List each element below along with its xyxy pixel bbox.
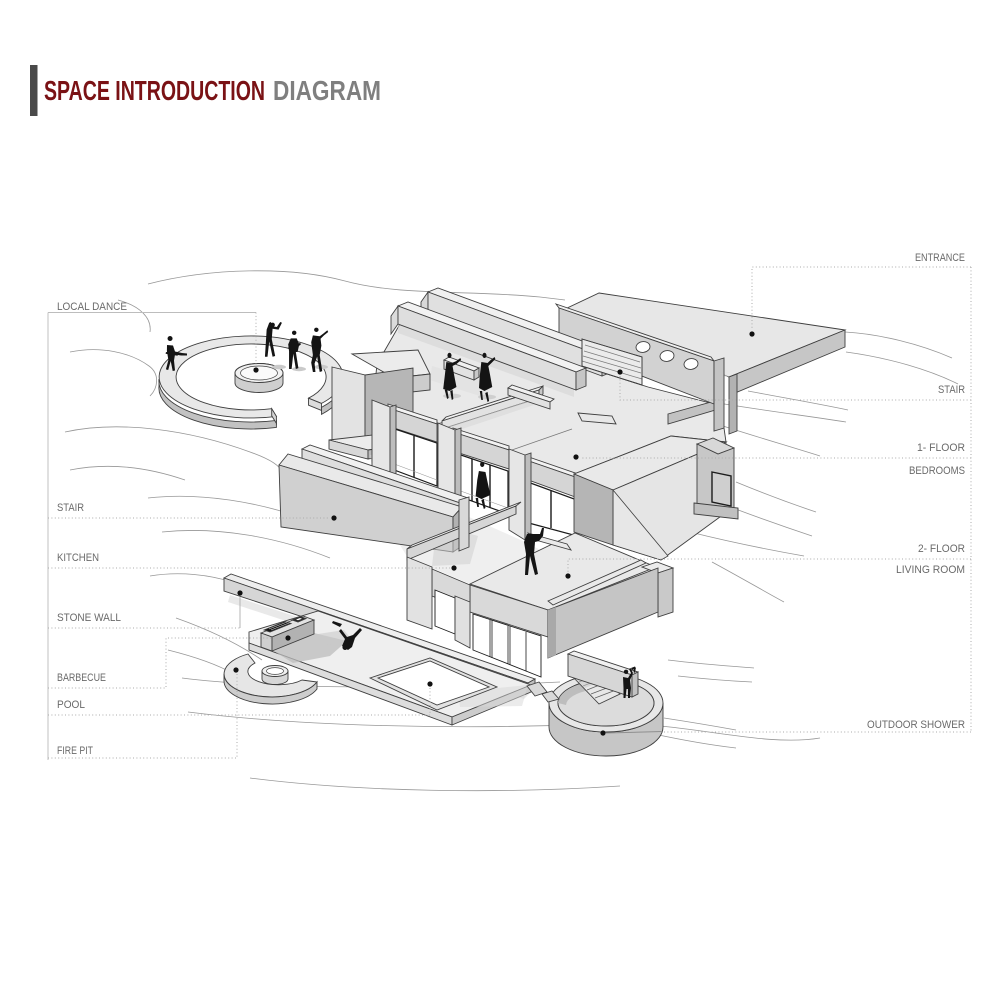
svg-text:FIRE PIT: FIRE PIT <box>57 745 93 757</box>
svg-text:KITCHEN: KITCHEN <box>57 552 99 564</box>
svg-text:LOCAL DANCE: LOCAL DANCE <box>57 301 127 313</box>
svg-text:SPACE INTRODUCTION: SPACE INTRODUCTION <box>44 75 265 106</box>
svg-text:STONE WALL: STONE WALL <box>57 612 121 624</box>
svg-text:2- FLOOR: 2- FLOOR <box>918 543 965 555</box>
svg-text:1- FLOOR: 1- FLOOR <box>917 442 965 454</box>
svg-text:BEDROOMS: BEDROOMS <box>909 465 965 477</box>
svg-text:POOL: POOL <box>57 699 85 711</box>
svg-text:OUTDOOR SHOWER: OUTDOOR SHOWER <box>867 719 965 731</box>
svg-text:STAIR: STAIR <box>57 502 84 514</box>
svg-text:BARBECUE: BARBECUE <box>57 672 106 684</box>
svg-text:STAIR: STAIR <box>938 384 965 396</box>
svg-text:DIAGRAM: DIAGRAM <box>273 75 381 106</box>
svg-text:LIVING ROOM: LIVING ROOM <box>896 564 965 576</box>
svg-text:ENTRANCE: ENTRANCE <box>915 252 965 264</box>
